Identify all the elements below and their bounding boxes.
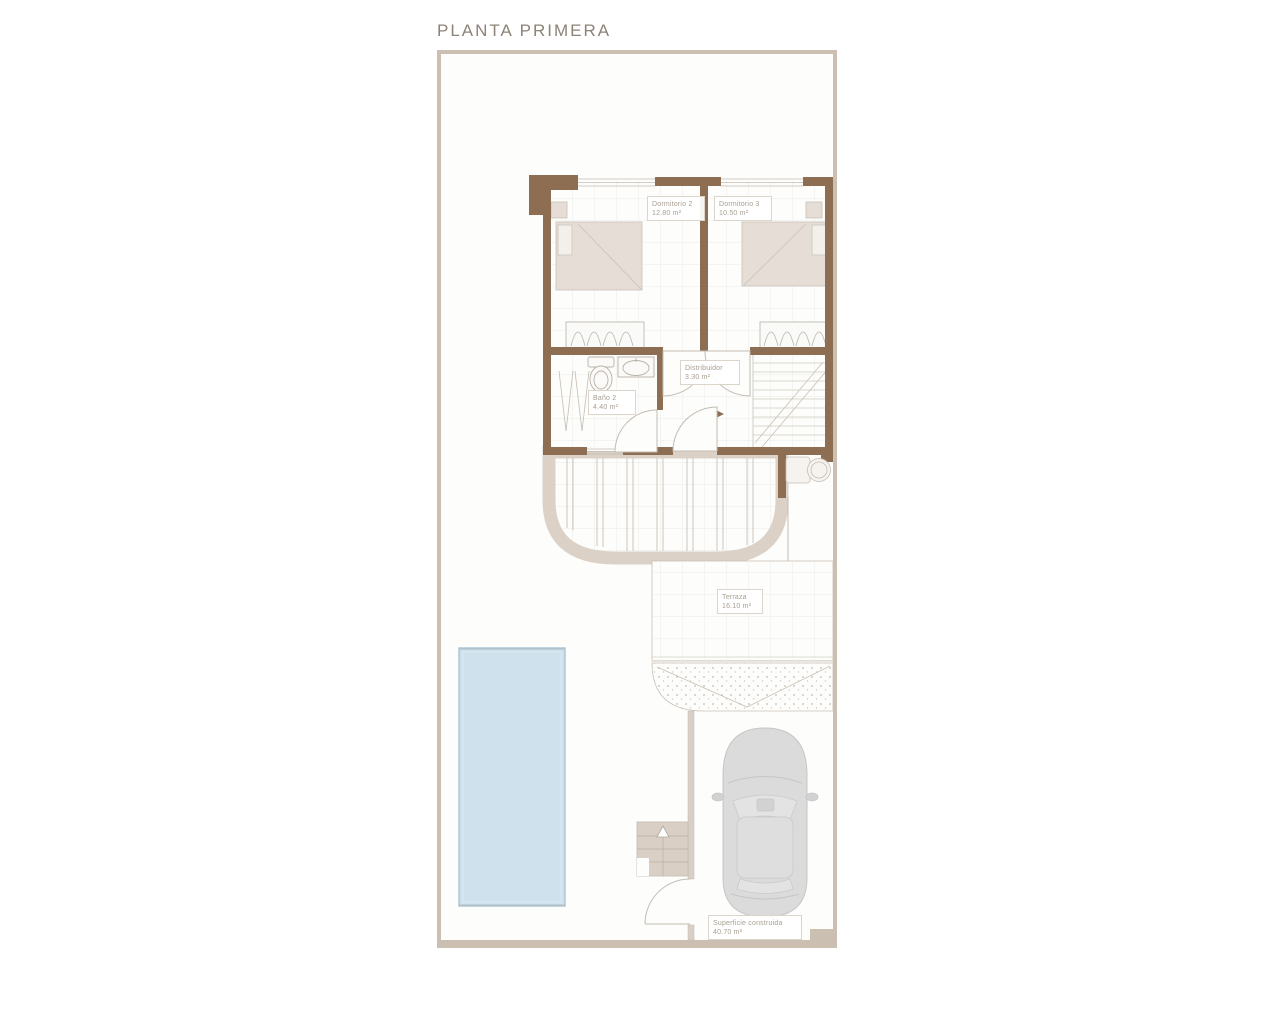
sink-icon [618,357,654,377]
pool [459,648,565,906]
car-top-view [712,728,818,917]
balcony-railing [549,452,788,561]
room-label-dormitorio-3: Dormitorio 3 10.50 m² [714,196,772,221]
room-label-superficie-construida: Superficie construida 40.70 m² [708,915,802,940]
boiler-icon [808,459,831,482]
car-mirror-left [712,793,724,801]
toilet-icon [588,357,614,392]
wardrobe-right [760,322,828,350]
room-name: Dormitorio 2 [652,200,701,209]
room-name: Superficie construida [713,919,798,928]
room-area: 3.30 m² [685,373,736,382]
floor-plan-page: PLANTA PRIMERA [0,0,1280,1024]
room-label-dormitorio-2: Dormitorio 2 12.80 m² [647,196,705,221]
room-label-distribuidor: Distribuidor 3.30 m² [680,360,740,385]
garage-left-wall [688,711,694,879]
floor-plan-drawing [0,0,1280,1024]
room-area: 40.70 m² [713,928,798,937]
wardrobe-left [566,322,644,350]
room-name: Baño 2 [593,394,632,403]
washer-icon [786,457,810,483]
room-area: 12.80 m² [652,209,701,218]
room-area: 16.10 m² [722,602,759,611]
room-label-terraza: Terraza 16.10 m² [717,589,763,614]
room-area: 4.40 m² [593,403,632,412]
driveway-hatch [652,663,833,711]
car-mirror-right [806,793,818,801]
room-label-bano-2: Baño 2 4.40 m² [588,390,636,415]
room-name: Terraza [722,593,759,602]
room-name: Distribuidor [685,364,736,373]
exterior-stairs [637,822,688,876]
room-name: Dormitorio 3 [719,200,768,209]
room-area: 10.50 m² [719,209,768,218]
